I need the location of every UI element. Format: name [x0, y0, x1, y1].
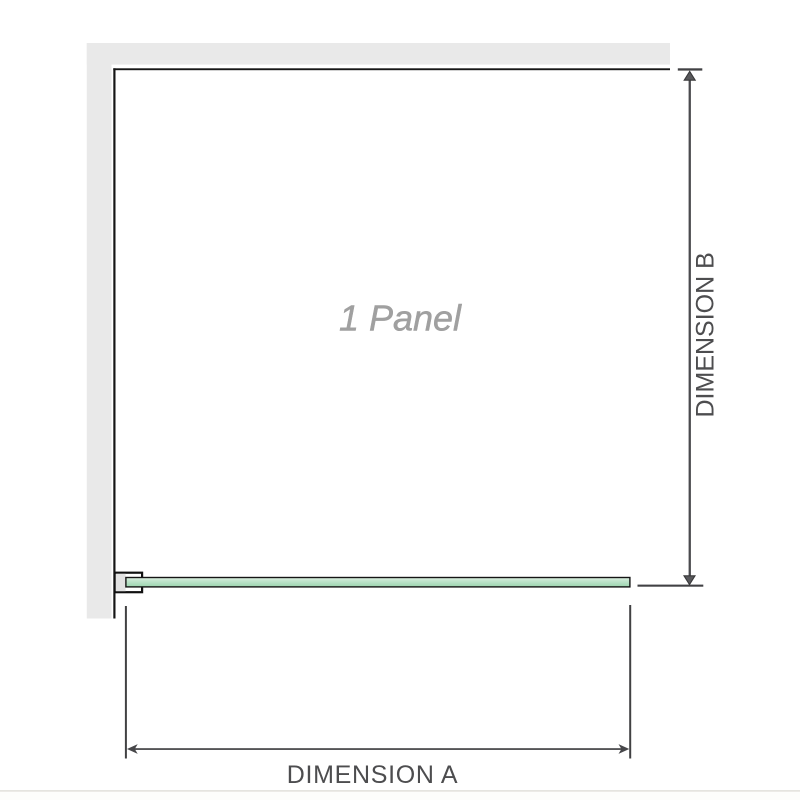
svg-text:DIMENSION B: DIMENSION B — [692, 252, 720, 417]
svg-text:1 Panel: 1 Panel — [339, 297, 462, 338]
svg-text:DIMENSION A: DIMENSION A — [287, 761, 459, 789]
